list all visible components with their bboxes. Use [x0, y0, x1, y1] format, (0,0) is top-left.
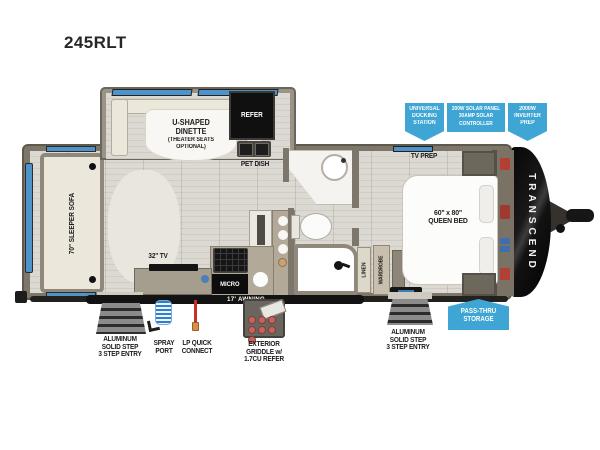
- microwave: MICRO: [211, 274, 248, 294]
- callout-universal-docking-station: UNIVERSAL DOCKING STATION: [405, 103, 444, 141]
- stove-cooktop: [213, 248, 248, 273]
- tv-32in: [149, 264, 198, 271]
- shower: [294, 244, 358, 295]
- pet-dish-label: PET DISH: [228, 161, 282, 169]
- speaker-dot: [201, 275, 209, 283]
- front-cap: TRANSCEND: [511, 147, 551, 297]
- dinette-bench: [111, 99, 128, 156]
- toilet-tank: [291, 215, 300, 239]
- floorplan-model-title: 245RLT: [64, 33, 127, 53]
- pass-thru-compartment: [497, 150, 514, 296]
- rear-bumper: [15, 291, 27, 303]
- step-entry-left-label: ALUMINUM SOLID STEP 3 STEP ENTRY: [86, 336, 154, 359]
- entry-door: [388, 292, 432, 299]
- sofa-label: 70" SLEEPER SOFA: [40, 153, 104, 293]
- kitchen-counter: [249, 210, 272, 248]
- wall-segment: [283, 148, 289, 182]
- callout-pass-thru-storage: PASS-THRU STORAGE: [448, 299, 509, 330]
- dinette-table-label: U-SHAPED DINETTE (THEATER SEATS OPTIONAL…: [145, 109, 237, 161]
- lp-quick-connect-label: LP QUICK CONNECT: [170, 340, 224, 355]
- kitchen-sink: [251, 270, 270, 289]
- wall-segment: [352, 148, 359, 208]
- lp-quick-connect-icon: [194, 300, 197, 324]
- refrigerator: REFER: [229, 91, 275, 140]
- rv-floorplan-image: 245RLT TRANSCEND 70" SLEEPER SOFA U-SHAP…: [0, 0, 600, 450]
- entry-steps-icon: [96, 303, 146, 334]
- brand-name: TRANSCEND: [526, 173, 537, 272]
- window-strip: [112, 89, 193, 96]
- faucet: [341, 158, 346, 163]
- wall-segment: [352, 228, 359, 246]
- tv-cabinet: [134, 268, 212, 295]
- nightstand: [462, 273, 496, 296]
- nightstand: [462, 151, 496, 176]
- tv-prep-label: TV PREP: [400, 153, 448, 161]
- tv-prep-mount: [393, 146, 433, 152]
- griddle-label: EXTERIOR GRIDDLE w/ 1.7CU REFER: [233, 341, 295, 364]
- pet-dish-drawer: [237, 141, 271, 157]
- queen-bed-label: 60" x 80" QUEEN BED: [402, 209, 494, 225]
- counter-fixture: [278, 258, 287, 267]
- callout-inverter-prep: 2000W INVERTER PREP: [508, 103, 547, 141]
- hitch-coupler: [566, 209, 594, 222]
- wardrobe-cabinet: WARDROBE: [373, 245, 390, 295]
- toilet: [300, 213, 332, 240]
- rear-window: [25, 163, 33, 273]
- window-strip: [46, 146, 96, 152]
- linen-cabinet: LINEN: [357, 247, 371, 293]
- entry-steps-icon: [387, 299, 433, 325]
- spray-nozzle-icon: [147, 319, 160, 332]
- tv-label: 32" TV: [136, 253, 180, 261]
- exterior-griddle-icon: [243, 299, 285, 338]
- awning-bar: 17' AWNING: [86, 295, 364, 304]
- callout-solar-panel: 200W SOLAR PANEL 30AMP SOLAR CONTROLLER: [447, 103, 505, 132]
- lp-quick-connect-icon: [192, 322, 199, 331]
- tongue-jack: [556, 224, 565, 233]
- pillow: [479, 237, 494, 275]
- step-entry-right-label: ALUMINUM SOLID STEP 3 STEP ENTRY: [376, 329, 440, 352]
